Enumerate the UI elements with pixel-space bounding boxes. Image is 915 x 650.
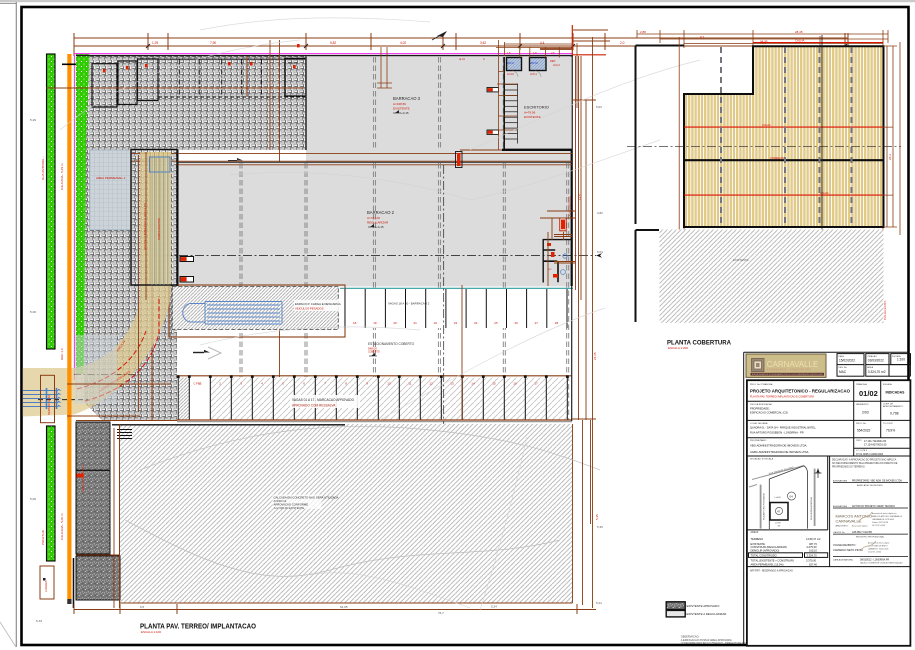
svg-text:5,35: 5,35 bbox=[595, 514, 599, 520]
svg-text:3.324,70 m2: 3.324,70 m2 bbox=[868, 370, 886, 374]
svg-text:TERRENO: TERRENO bbox=[751, 537, 764, 541]
svg-text:A=4,6: A=4,6 bbox=[507, 72, 514, 76]
svg-text:5,04: 5,04 bbox=[597, 250, 603, 254]
svg-text:VEICULOS PESADOS: VEICULOS PESADOS bbox=[295, 307, 324, 311]
svg-text:CARNAVALLE: CARNAVALLE bbox=[836, 519, 862, 524]
svg-text:AREA PERMEAVEL 1: AREA PERMEAVEL 1 bbox=[81, 464, 85, 492]
svg-text:554/2022: 554/2022 bbox=[857, 429, 871, 433]
svg-text:OBSERVACAO:: OBSERVACAO: bbox=[681, 635, 700, 639]
svg-text:24: 24 bbox=[474, 321, 478, 325]
svg-text:MAC: MAC bbox=[839, 370, 847, 374]
svg-text:REGULARIZAR: REGULARIZAR bbox=[367, 221, 389, 225]
svg-text:2/03: 2/03 bbox=[862, 411, 869, 415]
svg-text:PROPRIEDADE DO TERRENO.: PROPRIEDADE DO TERRENO. bbox=[832, 466, 866, 469]
svg-text:AGBC ADMINISTRADORA DE IMOVEIS: AGBC ADMINISTRADORA DE IMOVEIS LTDA bbox=[750, 450, 809, 454]
svg-text:5,82: 5,82 bbox=[330, 41, 336, 45]
svg-text:5,00: 5,00 bbox=[30, 310, 36, 314]
svg-text:CUMEEIRA: CUMEEIRA bbox=[770, 156, 785, 160]
svg-text:BARRACAO 2: BARRACAO 2 bbox=[367, 210, 395, 215]
svg-text:A=79,06: A=79,06 bbox=[524, 111, 536, 115]
svg-text:LOTE: LOTE bbox=[775, 523, 781, 525]
svg-text:DECLARACAO: A APROVACAO DO PRO: DECLARACAO: A APROVACAO DO PROJETO NAO I… bbox=[832, 459, 897, 462]
svg-text:CRIACAO: CRIACAO bbox=[867, 355, 877, 358]
svg-text:17.101.711/0001-50: 17.101.711/0001-50 bbox=[864, 440, 887, 443]
svg-text:CALCADA - 5,29 m: CALCADA - 5,29 m bbox=[60, 163, 64, 190]
svg-text:3,82: 3,82 bbox=[597, 211, 603, 215]
svg-text:NO RECONHECIMENTO PELA PREFEIT: NO RECONHECIMENTO PELA PREFEITURA DO DIR… bbox=[832, 462, 898, 465]
svg-text:11: 11 bbox=[408, 382, 411, 386]
svg-text:PRANCHA: PRANCHA bbox=[856, 383, 867, 386]
svg-text:3.324,70: 3.324,70 bbox=[807, 553, 818, 557]
svg-text:ENGENHARIA . ARQUITETURA: ENGENHARIA . ARQUITETURA bbox=[767, 369, 811, 372]
svg-text:+0,15: +0,15 bbox=[376, 225, 384, 229]
svg-text:TOTAL CONSTRUIDO: TOTAL CONSTRUIDO bbox=[751, 553, 777, 557]
svg-text:DATA ASSINATURA: DATA ASSINATURA bbox=[833, 558, 853, 561]
svg-text:PLANTA PAV. TERREO/ IMPLANTACA: PLANTA PAV. TERREO/ IMPLANTACAO E COBERT… bbox=[750, 396, 814, 399]
svg-text:VBG ADMINISTRADORA DE IMOVEIS: VBG ADMINISTRADORA DE IMOVEIS LTDA. bbox=[750, 444, 808, 448]
svg-text:12,5: 12,5 bbox=[578, 194, 582, 200]
svg-text:15: 15 bbox=[492, 382, 496, 386]
svg-text:CARNAVALLE: 4735.0001: CARNAVALLE: 4735.0001 bbox=[872, 518, 894, 521]
svg-text:627,40: 627,40 bbox=[809, 563, 817, 567]
svg-text:Assinado digital: Assinado digital bbox=[852, 525, 868, 528]
svg-text:76,7: 76,7 bbox=[438, 611, 444, 615]
svg-text:RUA SERRA MORENA: RUA SERRA MORENA bbox=[810, 497, 813, 520]
svg-text:CALHA EXIST.: CALHA EXIST. bbox=[883, 300, 887, 320]
svg-text:CAMARGO: 2022.03.08: CAMARGO: 2022.03.08 bbox=[868, 548, 888, 551]
svg-text:I.C. LOTE 4: I.C. LOTE 4 bbox=[856, 450, 868, 452]
svg-text:3,62: 3,62 bbox=[480, 41, 486, 45]
svg-text:RUA ANTONIO...: RUA ANTONIO... bbox=[41, 156, 45, 180]
svg-text:24,3: 24,3 bbox=[888, 154, 892, 160]
svg-text:CALHA: CALHA bbox=[762, 123, 771, 127]
svg-text:CARNAVALLE: CARNAVALLE bbox=[767, 359, 819, 369]
svg-text:SITUACAO S/ ESCALA: SITUACAO S/ ESCALA bbox=[750, 458, 774, 461]
svg-text:AGBC ADM. DE IMOVEIS: AGBC ADM. DE IMOVEIS bbox=[857, 484, 883, 487]
svg-text:22: 22 bbox=[434, 321, 438, 325]
svg-text:CALHA: CALHA bbox=[820, 191, 829, 195]
svg-text:PROJ. No: PROJ. No bbox=[856, 423, 867, 425]
svg-text:AUTOR DO PROJETO / RESP. TECNI: AUTOR DO PROJETO / RESP. TECNICO bbox=[852, 505, 895, 508]
svg-text:3.370,00: 3.370,00 bbox=[806, 558, 817, 562]
svg-text:PROJETO ARQUITETONICO - REGULA: PROJETO ARQUITETONICO - REGULARIZACAO bbox=[750, 389, 850, 395]
svg-text:BARRACAO 3: BARRACAO 3 bbox=[393, 96, 421, 101]
svg-text:04: 04 bbox=[790, 494, 794, 498]
svg-text:ESCALA 1:200: ESCALA 1:200 bbox=[668, 346, 688, 350]
svg-text:Assinado de forma digital: Assinado de forma digital bbox=[868, 542, 890, 545]
svg-text:A=727,00: A=727,00 bbox=[367, 216, 380, 220]
svg-text:26: 26 bbox=[515, 321, 519, 325]
svg-text:AREA PERMEAVEL 2: AREA PERMEAVEL 2 bbox=[96, 176, 126, 180]
svg-text:15/02/2022: 15/02/2022 bbox=[839, 359, 855, 363]
svg-text:RUA ARTURO POSSEBON - LONDRINA: RUA ARTURO POSSEBON - LONDRINA - PR bbox=[750, 431, 804, 435]
svg-text:VOLNEI DE BRITO: VOLNEI DE BRITO bbox=[833, 543, 855, 547]
svg-text:AREA: AREA bbox=[867, 366, 873, 369]
svg-text:14: 14 bbox=[471, 382, 475, 386]
svg-text:WC F: WC F bbox=[507, 61, 514, 65]
svg-text:EXISTENTE APROVADO: EXISTENTE APROVADO bbox=[687, 604, 721, 608]
svg-text:tq-01: tq-01 bbox=[459, 57, 465, 61]
svg-text:RUA ARTURO POSSEBON: RUA ARTURO POSSEBON bbox=[763, 493, 766, 520]
svg-text:9,2: 9,2 bbox=[700, 35, 705, 39]
svg-text:18: 18 bbox=[353, 321, 357, 325]
svg-text:17: 17 bbox=[534, 382, 538, 386]
svg-text:4.159,37 m2: 4.159,37 m2 bbox=[806, 537, 821, 541]
svg-text:CAMARGO NETO PINTO: CAMARGO NETO PINTO bbox=[833, 548, 863, 552]
svg-text:ESCALA: ESCALA bbox=[883, 383, 892, 386]
svg-text:DES. No: DES. No bbox=[839, 367, 848, 369]
svg-text:ART/RRT - RESERVADO A APROVACA: ART/RRT - RESERVADO A APROVACAO bbox=[750, 570, 793, 573]
svg-text:CNPJ: CNPJ bbox=[856, 440, 861, 442]
svg-text:23: 23 bbox=[454, 321, 458, 325]
svg-text:64,05: 64,05 bbox=[340, 605, 348, 609]
svg-text:MOTOS: MOTOS bbox=[288, 61, 298, 65]
svg-text:A=2,2: A=2,2 bbox=[553, 63, 560, 67]
svg-text:5,33: 5,33 bbox=[36, 619, 42, 623]
svg-text:RAMPA ACESSO: RAMPA ACESSO bbox=[157, 217, 161, 240]
svg-text:17.124.607/0001-20: 17.124.607/0001-20 bbox=[864, 444, 887, 447]
svg-text:A=5,1: A=5,1 bbox=[530, 72, 537, 76]
svg-text:EXISTENTE A REGULARIZAR: EXISTENTE A REGULARIZAR bbox=[687, 612, 727, 616]
svg-text:LOCAL DA OBRA: LOCAL DA OBRA bbox=[750, 422, 768, 425]
svg-text:03/03/2022: 03/03/2022 bbox=[868, 359, 884, 363]
svg-text:C PNE: C PNE bbox=[194, 382, 202, 386]
svg-text:14:21:33 -03'00': 14:21:33 -03'00' bbox=[872, 525, 886, 527]
svg-text:PROPRIEDADE:: PROPRIEDADE: bbox=[750, 407, 770, 411]
svg-text:EDIFICACAO COMERCIAL (CS): EDIFICACAO COMERCIAL (CS) bbox=[750, 411, 788, 415]
svg-text:10: 10 bbox=[387, 382, 391, 386]
svg-text:REC 1,0: REC 1,0 bbox=[60, 348, 64, 360]
svg-text:1:100: 1:100 bbox=[897, 358, 905, 362]
svg-text:ESPACO P. CARGA E DESCARGA: ESPACO P. CARGA E DESCARGA bbox=[295, 302, 341, 306]
svg-text:28,45: 28,45 bbox=[795, 30, 803, 34]
svg-text:ESCRITORIO: ESCRITORIO bbox=[524, 105, 549, 110]
svg-text:VAGAS 01 A 17 - MARCACAO APROV: VAGAS 01 A 17 - MARCACAO APROVADO bbox=[292, 398, 355, 402]
svg-text:CALHA: CALHA bbox=[795, 39, 804, 43]
svg-text:MARCOS ANTONIO CARNAVALLE: MARCOS ANTONIO CARNAVALLE bbox=[872, 515, 903, 518]
svg-text:5,03: 5,03 bbox=[596, 105, 602, 109]
svg-text:PAVIMENTO: PAVIMENTO bbox=[856, 403, 869, 406]
svg-text:TOTAL (EXISTENTE + CONSTRUIR): TOTAL (EXISTENTE + CONSTRUIR) bbox=[751, 558, 794, 562]
svg-text:160,10: 160,10 bbox=[809, 548, 817, 552]
svg-text:13: 13 bbox=[450, 382, 454, 386]
svg-text:47: 47 bbox=[777, 509, 781, 513]
svg-text:24,35: 24,35 bbox=[593, 352, 597, 360]
svg-text:Assinado de forma digital por: Assinado de forma digital por bbox=[872, 512, 897, 515]
svg-text:ASSINATURA: ASSINATURA bbox=[833, 480, 847, 483]
svg-text:A35.089-7 CAU/PR: A35.089-7 CAU/PR bbox=[852, 531, 872, 534]
svg-text:2,6: 2,6 bbox=[551, 51, 555, 55]
svg-text:EXISTENTE: EXISTENTE bbox=[393, 107, 410, 111]
svg-text:APROVEITAMENTO: APROVEITAMENTO bbox=[883, 405, 904, 408]
svg-text:VALIDO SOMENTE COM AUTENTICACA: VALIDO SOMENTE COM AUTENTICACAO bbox=[860, 562, 903, 565]
svg-text:28: 28 bbox=[555, 321, 559, 325]
svg-text:L=404: L=404 bbox=[775, 497, 782, 499]
svg-text:PROPRIETARIO: VBG ADM. DE IMOV: PROPRIETARIO: VBG ADM. DE IMOVEIS LTDA bbox=[852, 480, 902, 483]
svg-text:PROJ. No / PRANCHA: PROJ. No / PRANCHA bbox=[750, 383, 773, 386]
svg-text:5,00: 5,00 bbox=[30, 497, 36, 501]
svg-text:5,35: 5,35 bbox=[597, 525, 603, 529]
svg-text:20: 20 bbox=[393, 321, 397, 325]
svg-text:AREAS: AREAS bbox=[751, 531, 759, 534]
svg-text:ARQUITETO: ARQUITETO bbox=[836, 525, 849, 528]
svg-text:LIXEIRA: LIXEIRA bbox=[44, 580, 48, 592]
svg-text:5,24: 5,24 bbox=[596, 601, 602, 605]
svg-text:QUADRA 01 - DATA 3/4 - PARQUE: QUADRA 01 - DATA 3/4 - PARQUE INDUSTRIAL… bbox=[750, 426, 816, 430]
svg-text:07.01.0025.1.0290.0001: 07.01.0025.1.0290.0001 bbox=[856, 453, 884, 456]
svg-text:5,24: 5,24 bbox=[491, 605, 497, 609]
svg-text:EXISTENTE: EXISTENTE bbox=[524, 115, 541, 119]
svg-text:16: 16 bbox=[513, 382, 517, 386]
svg-text:11:02:47 -03'00': 11:02:47 -03'00' bbox=[868, 552, 882, 554]
svg-text:DATA: DATA bbox=[839, 355, 845, 358]
svg-text:25: 25 bbox=[494, 321, 498, 325]
svg-text:INDICADAS: INDICADAS bbox=[886, 391, 906, 395]
svg-text:CALCADA - 5,00 m: CALCADA - 5,00 m bbox=[60, 513, 64, 540]
svg-text:DEP.: DEP. bbox=[550, 59, 556, 63]
svg-text:ASSINATURA: ASSINATURA bbox=[833, 505, 847, 508]
svg-text:27: 27 bbox=[535, 321, 539, 325]
svg-text:PROPRIETARIO: PROPRIETARIO bbox=[750, 439, 767, 442]
svg-text:2,0: 2,0 bbox=[620, 41, 625, 45]
svg-text:WC: WC bbox=[548, 269, 552, 271]
svg-text:DEMOLIR (APROVADO): DEMOLIR (APROVADO) bbox=[751, 548, 780, 552]
svg-text:WC M: WC M bbox=[530, 61, 538, 65]
svg-text:REGISTRO PROFISSIONAL: REGISTRO PROFISSIONAL bbox=[856, 535, 885, 538]
svg-text:12: 12 bbox=[429, 382, 433, 386]
svg-text:1,29: 1,29 bbox=[152, 41, 158, 45]
svg-text:2,88: 2,88 bbox=[640, 30, 646, 34]
svg-text:A=438,50: A=438,50 bbox=[393, 102, 406, 106]
svg-text:ESTACIONAMENTO COBERTO: ESTACIONAMENTO COBERTO bbox=[368, 342, 415, 346]
svg-text:19: 19 bbox=[373, 321, 377, 325]
svg-text:08/03/2022 - LONDRINA PR: 08/03/2022 - LONDRINA PR bbox=[860, 558, 889, 561]
svg-text:4,02: 4,02 bbox=[400, 41, 406, 45]
svg-text:+0,15: +0,15 bbox=[401, 111, 409, 115]
svg-text:EXISTENTE: EXISTENTE bbox=[733, 258, 749, 262]
svg-text:21: 21 bbox=[414, 321, 418, 325]
svg-text:79,9%: 79,9% bbox=[886, 429, 895, 433]
svg-text:01/02: 01/02 bbox=[859, 389, 878, 398]
svg-text:REBAIXO GUIA: REBAIXO GUIA bbox=[47, 395, 51, 415]
svg-text:1,8: 1,8 bbox=[533, 51, 537, 55]
svg-text:5,29: 5,29 bbox=[30, 118, 36, 122]
svg-text:A RUA SENADOR SOUZA NAVES 1925: A RUA SENADOR SOUZA NAVES 1925 SL 103 LO… bbox=[752, 373, 824, 376]
svg-text:TX OCUP.: TX OCUP. bbox=[883, 423, 893, 425]
svg-text:CAU/UF No: CAU/UF No bbox=[833, 531, 845, 534]
svg-text:CALHA EXISTENTE: CALHA EXISTENTE bbox=[569, 196, 572, 218]
svg-text:COBERTO: COBERTO bbox=[368, 351, 380, 354]
svg-text:AREA PERMEAVEL (15,0%): AREA PERMEAVEL (15,0%) bbox=[751, 563, 784, 567]
svg-text:COEF. DE: COEF. DE bbox=[883, 403, 894, 405]
svg-text:9,5: 9,5 bbox=[140, 605, 145, 609]
svg-text:USO DA EDIFICACAO: USO DA EDIFICACAO bbox=[750, 403, 773, 406]
svg-text:0,798: 0,798 bbox=[890, 412, 899, 416]
svg-text:VAGAS 18 A 30 - BARRACAO 2: VAGAS 18 A 30 - BARRACAO 2 bbox=[388, 302, 430, 306]
svg-text:1,5: 1,5 bbox=[507, 51, 511, 55]
svg-text:A=2.000,00 EXISTENTE: A=2.000,00 EXISTENTE bbox=[274, 506, 305, 510]
svg-text:Dados: 2022.03.08: Dados: 2022.03.08 bbox=[872, 522, 888, 524]
svg-text:PROJ 5,00: PROJ 5,00 bbox=[41, 530, 45, 545]
svg-text:ESCALA 1:100: ESCALA 1:100 bbox=[141, 630, 161, 634]
svg-text:APROVADO COM RESSALVA: APROVADO COM RESSALVA bbox=[292, 404, 336, 408]
svg-text:7,90: 7,90 bbox=[210, 41, 216, 45]
